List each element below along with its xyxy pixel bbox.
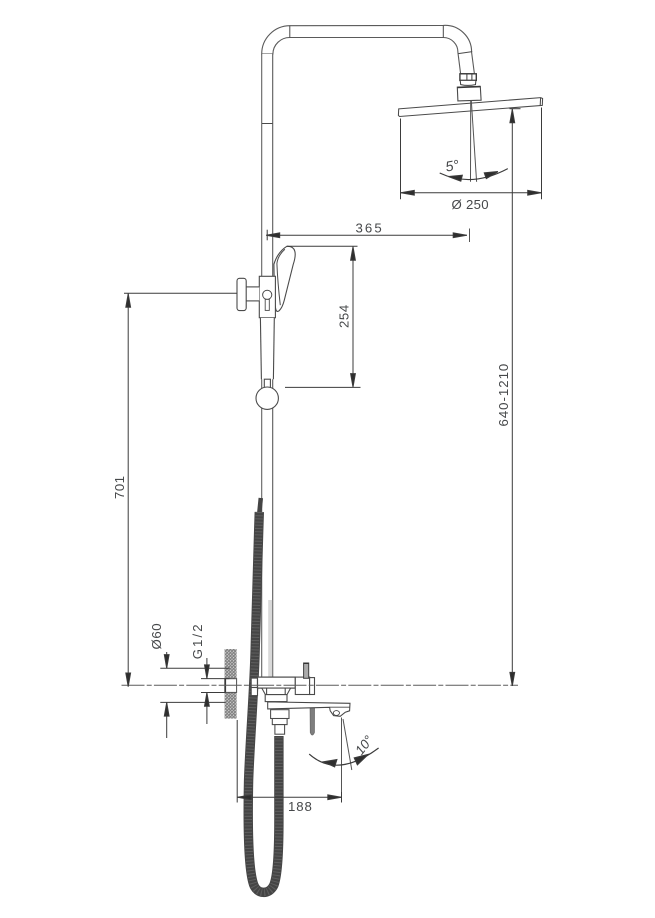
svg-text:5°: 5°: [444, 157, 460, 175]
svg-text:10°: 10°: [352, 733, 376, 758]
svg-text:254: 254: [337, 304, 352, 328]
svg-text:365: 365: [356, 221, 384, 236]
svg-text:Ø 250: Ø 250: [452, 197, 489, 212]
svg-text:640-1210: 640-1210: [496, 363, 511, 427]
svg-text:188: 188: [288, 799, 313, 814]
svg-text:G1/2: G1/2: [190, 622, 205, 659]
svg-text:Ø60: Ø60: [149, 623, 164, 650]
svg-text:701: 701: [112, 475, 127, 499]
